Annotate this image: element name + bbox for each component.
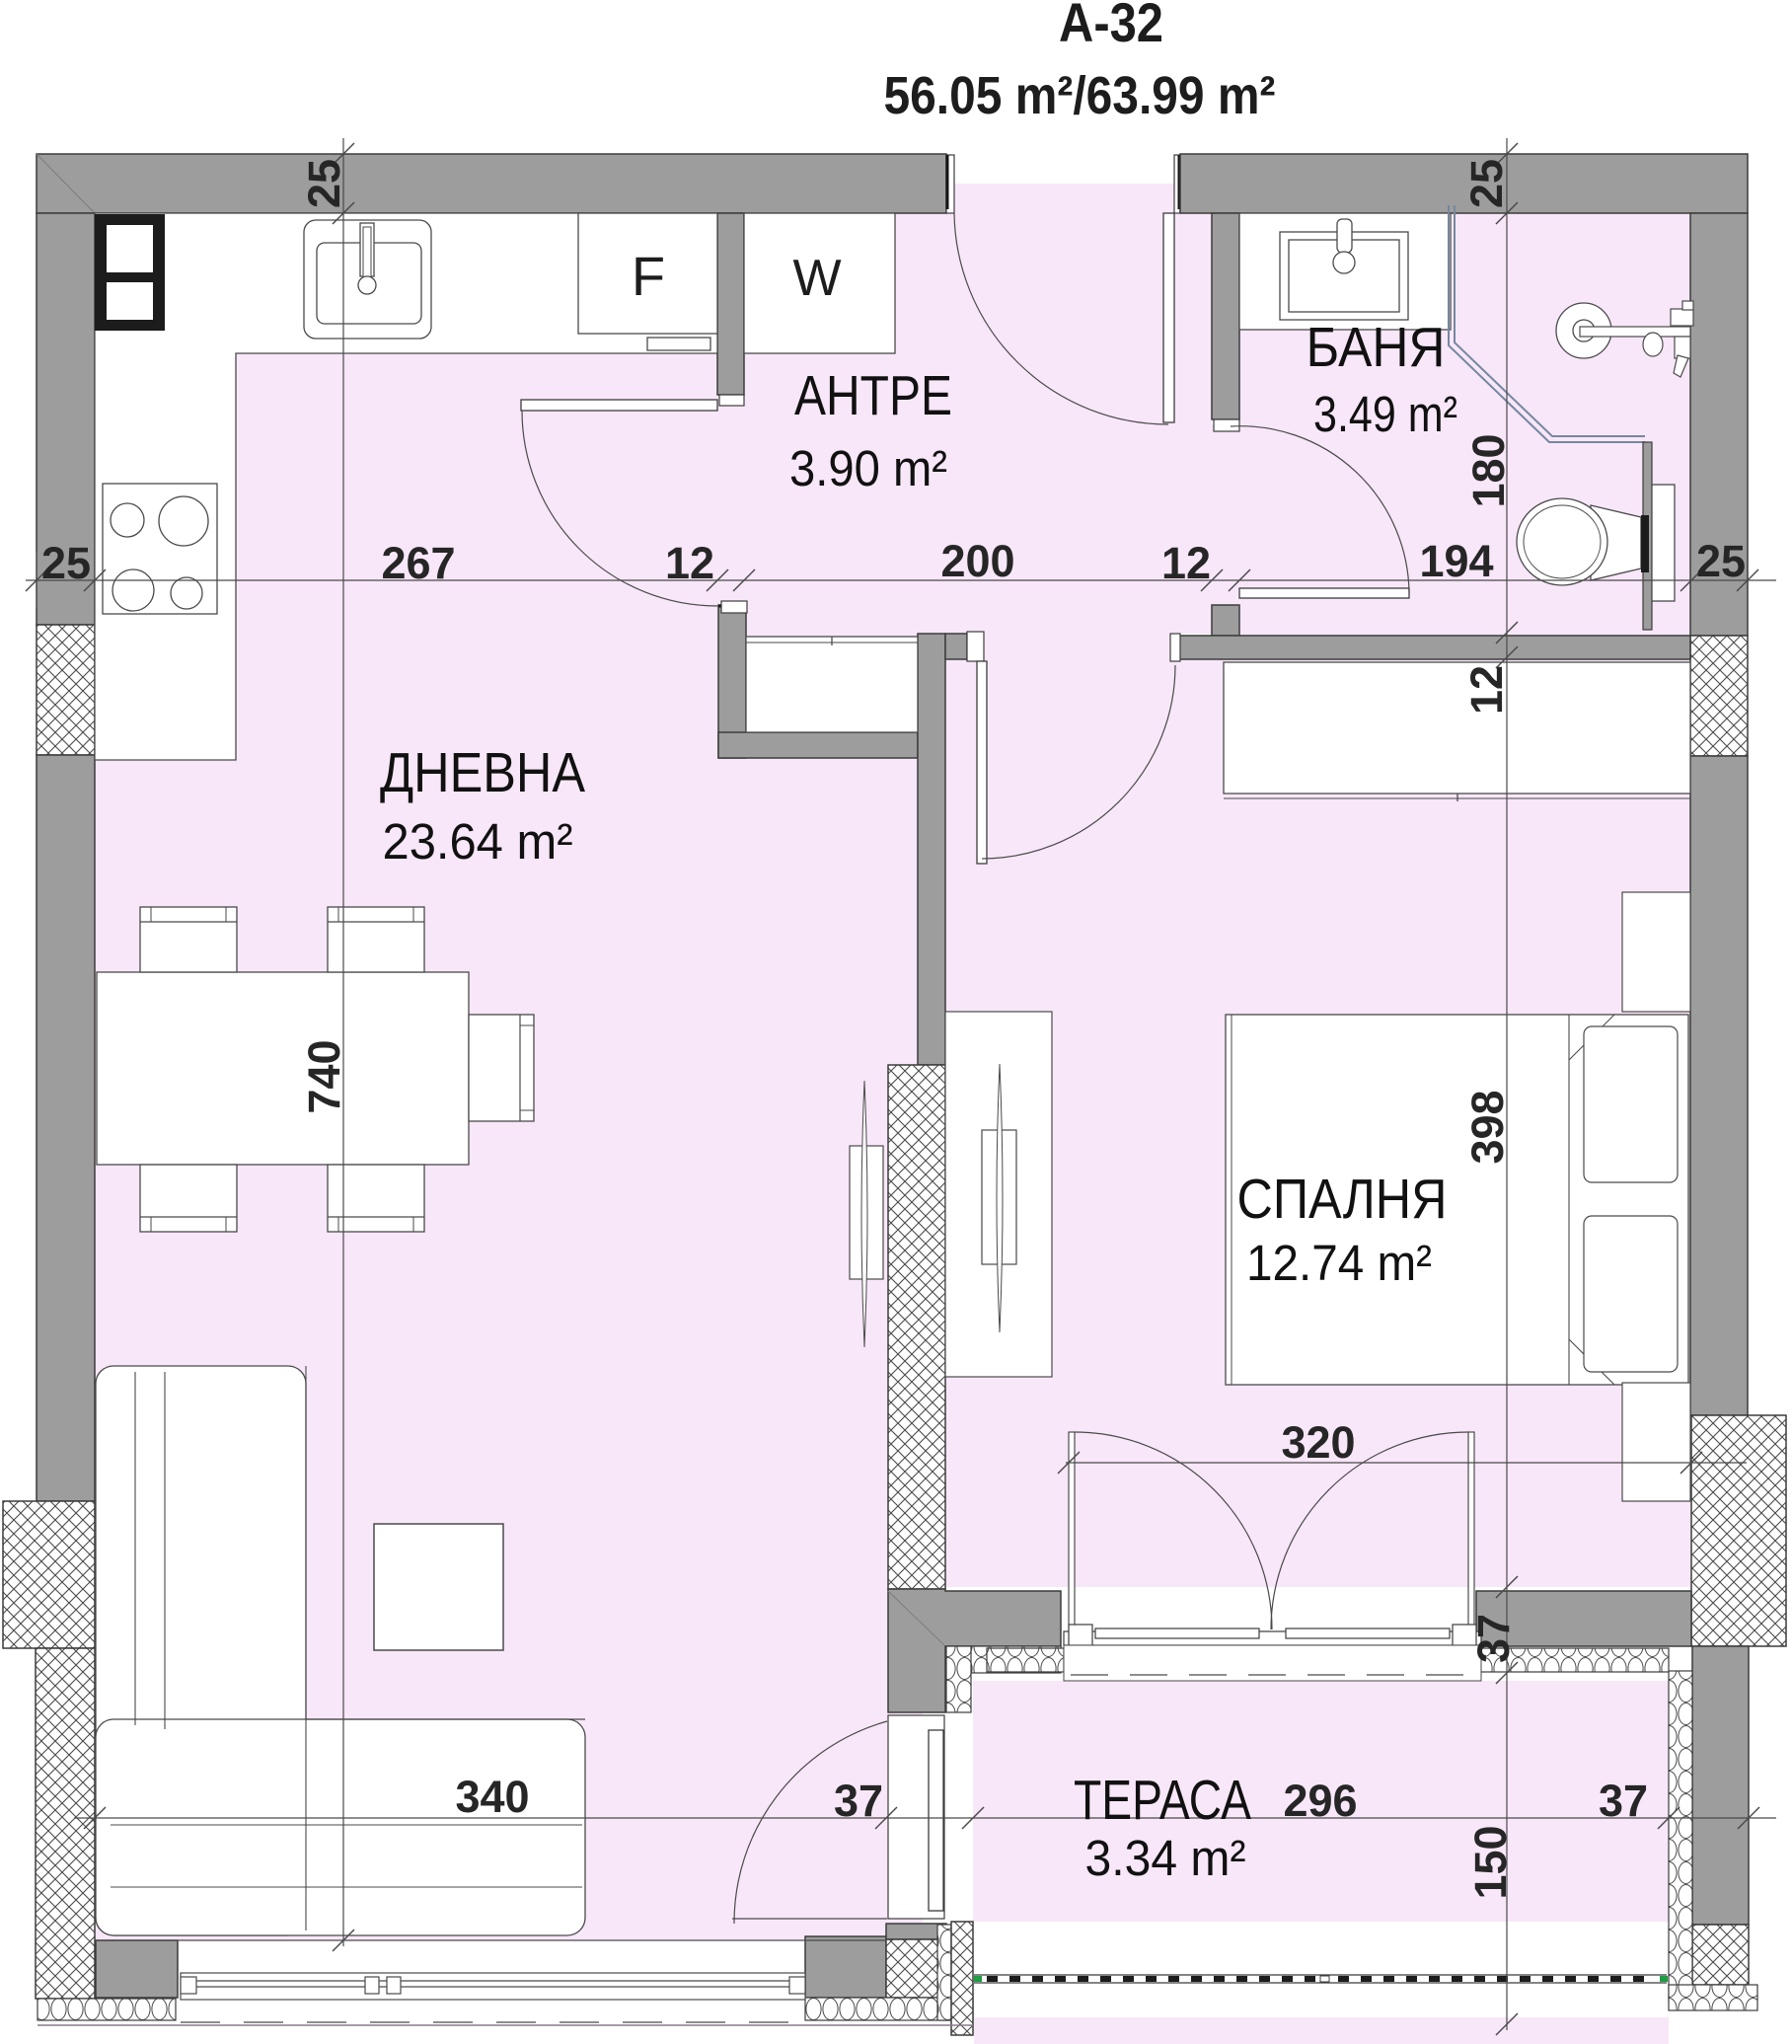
svg-text:ТЕРАСА: ТЕРАСА — [1074, 1769, 1251, 1832]
svg-text:320: 320 — [1281, 1417, 1355, 1468]
svg-text:3.90 m²: 3.90 m² — [789, 440, 947, 496]
svg-text:296: 296 — [1283, 1776, 1357, 1826]
svg-text:F: F — [632, 245, 665, 307]
svg-text:W: W — [792, 250, 841, 307]
svg-text:150: 150 — [1465, 1825, 1516, 1899]
svg-text:37: 37 — [1599, 1776, 1648, 1826]
svg-text:56.05 m²/63.99 m²: 56.05 m²/63.99 m² — [884, 66, 1276, 125]
svg-text:194: 194 — [1419, 536, 1493, 586]
svg-text:340: 340 — [455, 1772, 529, 1822]
svg-text:А-32: А-32 — [1059, 0, 1163, 53]
svg-text:740: 740 — [299, 1039, 349, 1113]
svg-text:12: 12 — [1161, 538, 1211, 588]
svg-text:12: 12 — [665, 538, 714, 588]
svg-text:БАНЯ: БАНЯ — [1307, 316, 1446, 379]
svg-text:25: 25 — [41, 538, 91, 588]
svg-text:12.74 m²: 12.74 m² — [1246, 1235, 1432, 1291]
svg-text:267: 267 — [381, 538, 455, 588]
svg-text:180: 180 — [1463, 433, 1514, 507]
svg-text:25: 25 — [299, 159, 349, 208]
svg-text:ДНЕВНА: ДНЕВНА — [380, 741, 585, 804]
svg-text:3.49 m²: 3.49 m² — [1313, 386, 1457, 442]
svg-text:37: 37 — [834, 1776, 883, 1826]
svg-text:25: 25 — [1696, 536, 1746, 586]
svg-text:23.64 m²: 23.64 m² — [383, 813, 573, 870]
svg-text:3.34 m²: 3.34 m² — [1085, 1830, 1246, 1886]
svg-text:АНТРЕ: АНТРЕ — [794, 364, 952, 427]
svg-text:25: 25 — [1461, 159, 1512, 208]
svg-text:200: 200 — [940, 536, 1014, 586]
svg-text:37: 37 — [1468, 1614, 1519, 1663]
svg-text:СПАЛНЯ: СПАЛНЯ — [1237, 1168, 1448, 1231]
svg-text:12: 12 — [1461, 665, 1512, 715]
svg-text:398: 398 — [1462, 1090, 1513, 1164]
